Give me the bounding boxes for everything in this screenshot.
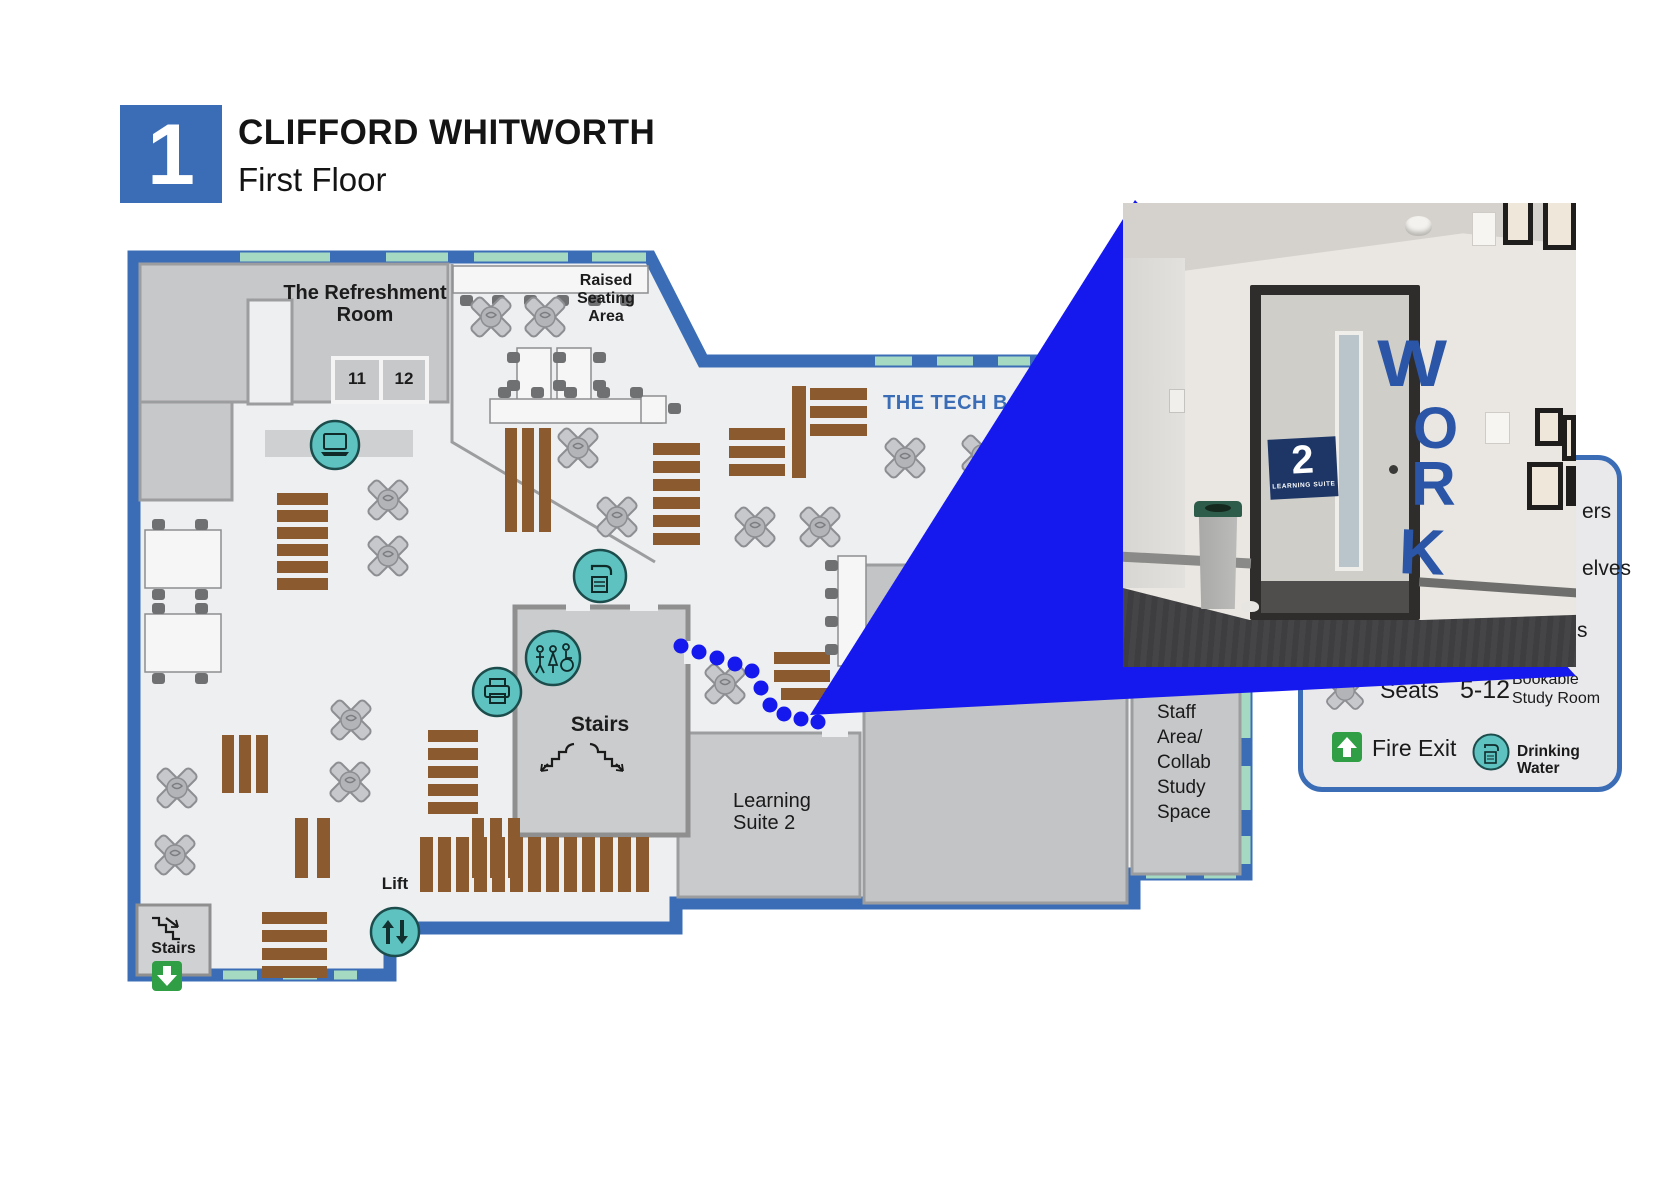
wall-bracket: [1169, 389, 1185, 413]
page-title: CLIFFORD WHITWORTH: [238, 113, 655, 152]
door-kick-plate: [1261, 581, 1409, 613]
legend-partial-computers: ers: [1582, 500, 1611, 524]
laptop-icon: [311, 421, 359, 469]
legend-fire-exit-label: Fire Exit: [1372, 736, 1456, 762]
cctv-camera-icon: [1405, 216, 1432, 236]
legend-partial-bookshelves: elves: [1582, 557, 1631, 581]
picture-frame: [1566, 466, 1576, 506]
toilets-icon: [526, 631, 580, 685]
door-window: [1335, 331, 1363, 571]
bookshelf: [505, 428, 551, 532]
drinking-water-icon: [574, 550, 626, 602]
fire-exit-icon: [152, 961, 182, 991]
page-subtitle: First Floor: [238, 162, 387, 199]
legend-drinking-water-icon: [1471, 732, 1511, 772]
legend-fire-exit-icon: [1332, 732, 1362, 762]
learning-suite-photo: 2 LEARNING SUITE W O R K: [1123, 203, 1576, 667]
legend-drinking-water-label: Drinking Water: [1517, 743, 1617, 778]
picture-frame: [1562, 415, 1576, 461]
door-handle: [1389, 465, 1398, 474]
tech-bar-label: THE TECH BAR: [883, 392, 1007, 418]
staff-area-label: StaffArea/CollabStudySpace: [1157, 700, 1211, 825]
door-sign-text: LEARNING SUITE: [1270, 480, 1338, 491]
legend-seats-label: Seats: [1380, 678, 1439, 704]
stairs-bottom-label: Stairs: [137, 940, 210, 958]
legend-capacity-value: 5-12: [1460, 676, 1510, 704]
legend-partial-stairs: s: [1577, 619, 1588, 643]
wall-sheet: [1472, 212, 1496, 246]
raised-seating-label: RaisedSeatingArea: [558, 272, 654, 326]
lift-icon: [371, 908, 419, 956]
stairs-center-label: Stairs: [540, 713, 660, 737]
wayfinding-poster: 1 CLIFFORD WHITWORTH First Floor The Ref…: [0, 0, 1680, 1181]
room-12-label: 12: [381, 369, 427, 388]
door-sign-number: 2: [1268, 438, 1338, 482]
skirting-right: [1419, 577, 1576, 597]
bookshelf: [222, 735, 268, 793]
floor-badge: 1: [120, 105, 222, 203]
door-sign: 2 LEARNING SUITE: [1267, 436, 1338, 499]
wall-sheet: [1485, 412, 1510, 444]
refreshment-room-label: The RefreshmentRoom: [270, 282, 460, 327]
room-11-label: 11: [333, 369, 381, 388]
picture-frame: [1543, 203, 1576, 250]
picture-frame: [1527, 462, 1563, 510]
printer-icon: [473, 668, 521, 716]
legend-capacity-label: BookableStudy Room: [1512, 670, 1600, 708]
photo-left-wall: [1123, 258, 1185, 588]
learning-suite-label: LearningSuite 2: [733, 790, 811, 835]
wall-letter-w: W: [1377, 325, 1447, 401]
lift-label: Lift: [370, 874, 420, 893]
picture-frame: [1535, 408, 1563, 446]
door-stop: [1241, 601, 1259, 612]
bookshelf: [774, 652, 830, 700]
bin-body: [1197, 509, 1239, 609]
legend-seat-icon-svg: [1315, 666, 1375, 716]
picture-frame: [1503, 203, 1533, 245]
wall-letter-r: R: [1411, 449, 1456, 520]
bin-lid-hole: [1205, 504, 1231, 512]
